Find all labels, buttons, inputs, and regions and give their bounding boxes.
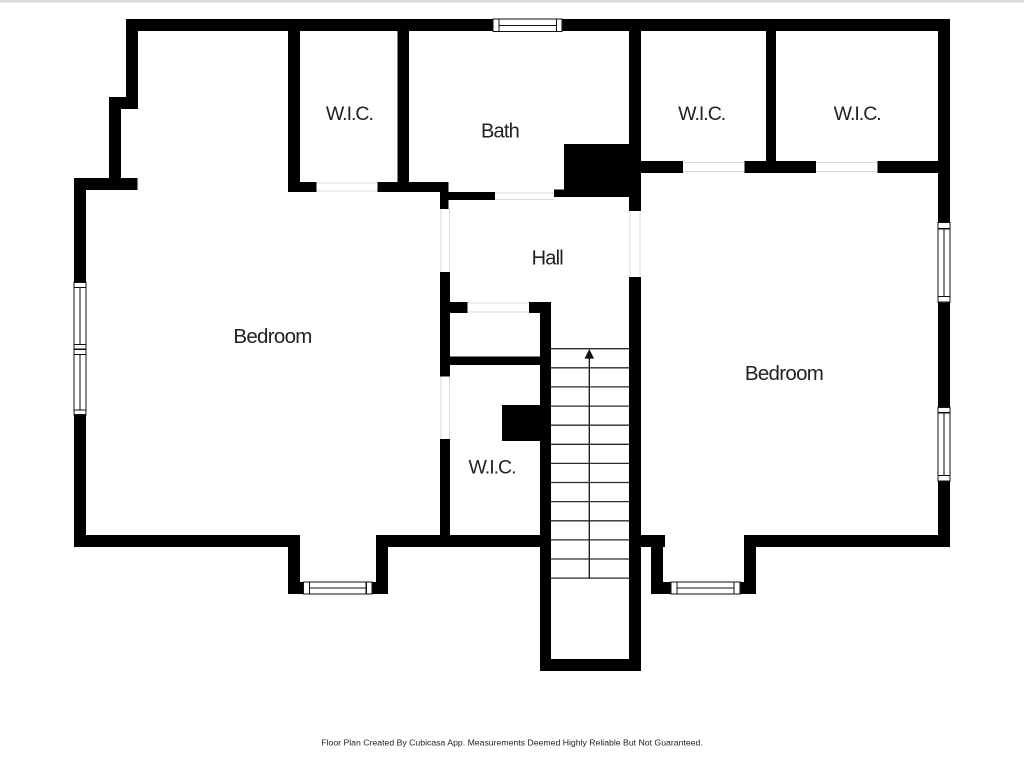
svg-text:W.I.C.: W.I.C. bbox=[834, 103, 881, 125]
svg-text:W.I.C.: W.I.C. bbox=[326, 103, 373, 125]
svg-text:Floor Plan Created By Cubicasa: Floor Plan Created By Cubicasa App. Meas… bbox=[321, 738, 702, 748]
svg-text:Bath: Bath bbox=[481, 121, 519, 143]
svg-text:Hall: Hall bbox=[532, 248, 564, 270]
svg-text:W.I.C.: W.I.C. bbox=[468, 457, 515, 479]
svg-text:Bedroom: Bedroom bbox=[233, 325, 311, 348]
svg-text:W.I.C.: W.I.C. bbox=[678, 103, 725, 125]
svg-text:Bedroom: Bedroom bbox=[745, 362, 823, 385]
